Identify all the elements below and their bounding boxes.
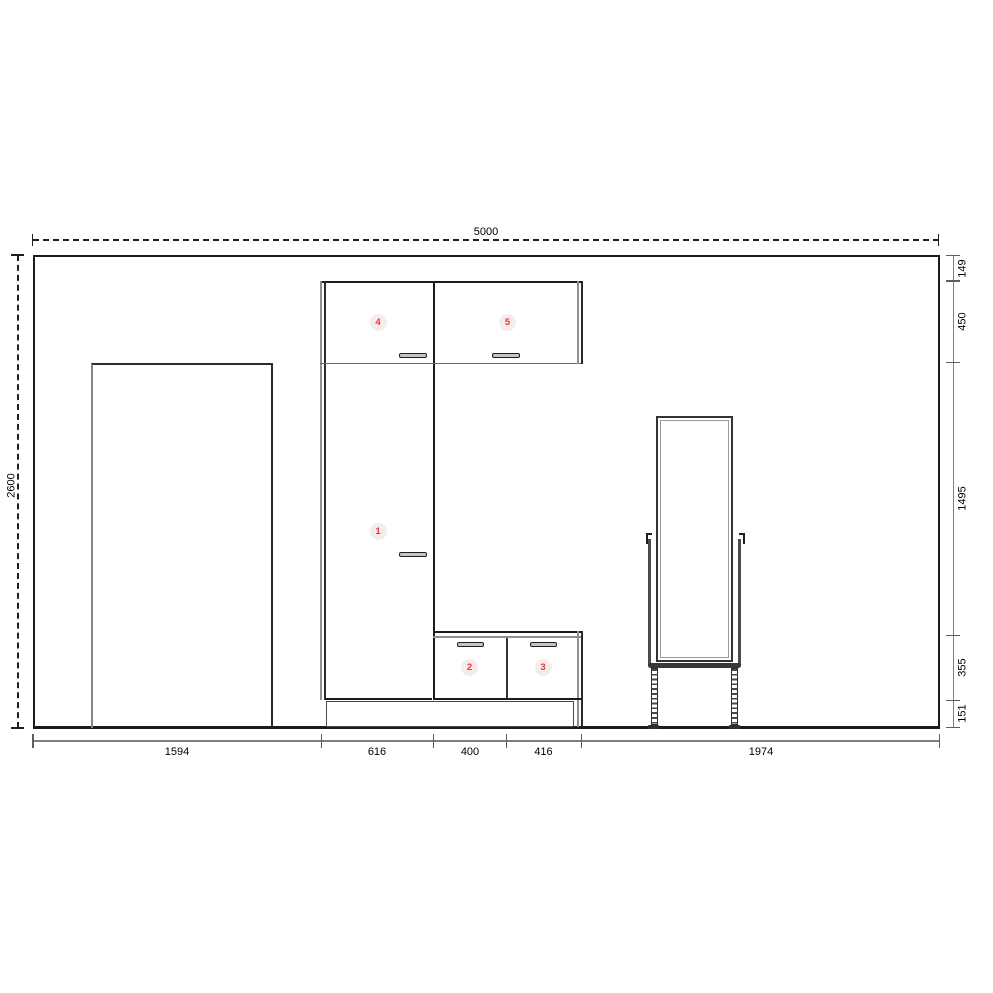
cabinet-5-right-panel-inner (581, 281, 583, 364)
dim-right-segment-label: 149 (956, 238, 969, 298)
upper-cabinets-bottom-edge (320, 363, 583, 365)
dim-tick (32, 234, 34, 246)
dim-tick (321, 734, 323, 749)
item-5-badge: 5 (499, 314, 516, 331)
dim-bottom-segment-label: 1594 (147, 746, 207, 759)
mirror-stand-left-foot (648, 725, 659, 729)
cabinet-4-handle (399, 353, 427, 358)
item-3-badge: 3 (535, 659, 552, 676)
mirror-stand-right-bar (738, 539, 741, 666)
dim-bottom-segment-label: 616 (347, 746, 407, 759)
door-1-handle (399, 552, 427, 557)
wardrobe-left-panel-inner (324, 281, 326, 700)
cabinet-5-handle (492, 353, 520, 358)
bench-door-divider (506, 638, 508, 699)
dim-tick (11, 727, 24, 729)
dim-tick (939, 734, 941, 749)
plinth (326, 701, 575, 727)
dim-tick (946, 635, 960, 637)
dim-tick (506, 734, 508, 749)
mirror-stand-left-bar (648, 539, 651, 666)
furniture-elevation-drawing: 5000 2600 149 450 1495 355 151 1594 616 … (0, 0, 993, 993)
door-2-handle (457, 642, 484, 647)
bench-right-panel (577, 631, 579, 727)
item-1-badge: 1 (370, 523, 387, 540)
dim-bottom-segment-label: 400 (440, 746, 500, 759)
dim-tick (32, 734, 34, 749)
cabinet-5-right-panel (577, 281, 579, 364)
bottom-dim-line (33, 740, 940, 742)
mirror-stand-right-leg (731, 668, 738, 725)
right-dim-line (953, 255, 955, 728)
dim-right-segment-label: 1495 (956, 468, 969, 528)
bench-right-panel-inner (581, 631, 583, 727)
bench-top (433, 631, 583, 633)
dim-bottom-segment-label: 416 (514, 746, 574, 759)
mirror-stand-right-foot (729, 725, 740, 729)
item-2-badge: 2 (461, 659, 478, 676)
dim-line-total-width (33, 239, 939, 241)
dim-label-total-width: 5000 (456, 226, 516, 239)
dim-tick (938, 234, 940, 246)
dim-tick (946, 362, 960, 364)
door-3-handle (530, 642, 557, 647)
wardrobe-left-panel (320, 281, 322, 700)
dim-right-segment-label: 450 (956, 291, 969, 351)
dim-tick (581, 734, 583, 749)
wardrobe-top-edge (320, 281, 583, 283)
dim-label-total-height: 2600 (5, 455, 18, 515)
dim-tick (11, 254, 24, 256)
dim-tick (433, 734, 435, 749)
mirror-glass-inner (660, 420, 729, 658)
mirror-stand-bottom-bar (648, 663, 741, 668)
item-4-badge: 4 (370, 314, 387, 331)
mirror-stand-left-leg (651, 668, 658, 725)
dim-right-segment-label: 151 (956, 684, 969, 744)
door-opening (91, 363, 273, 728)
dim-bottom-segment-label: 1974 (731, 746, 791, 759)
